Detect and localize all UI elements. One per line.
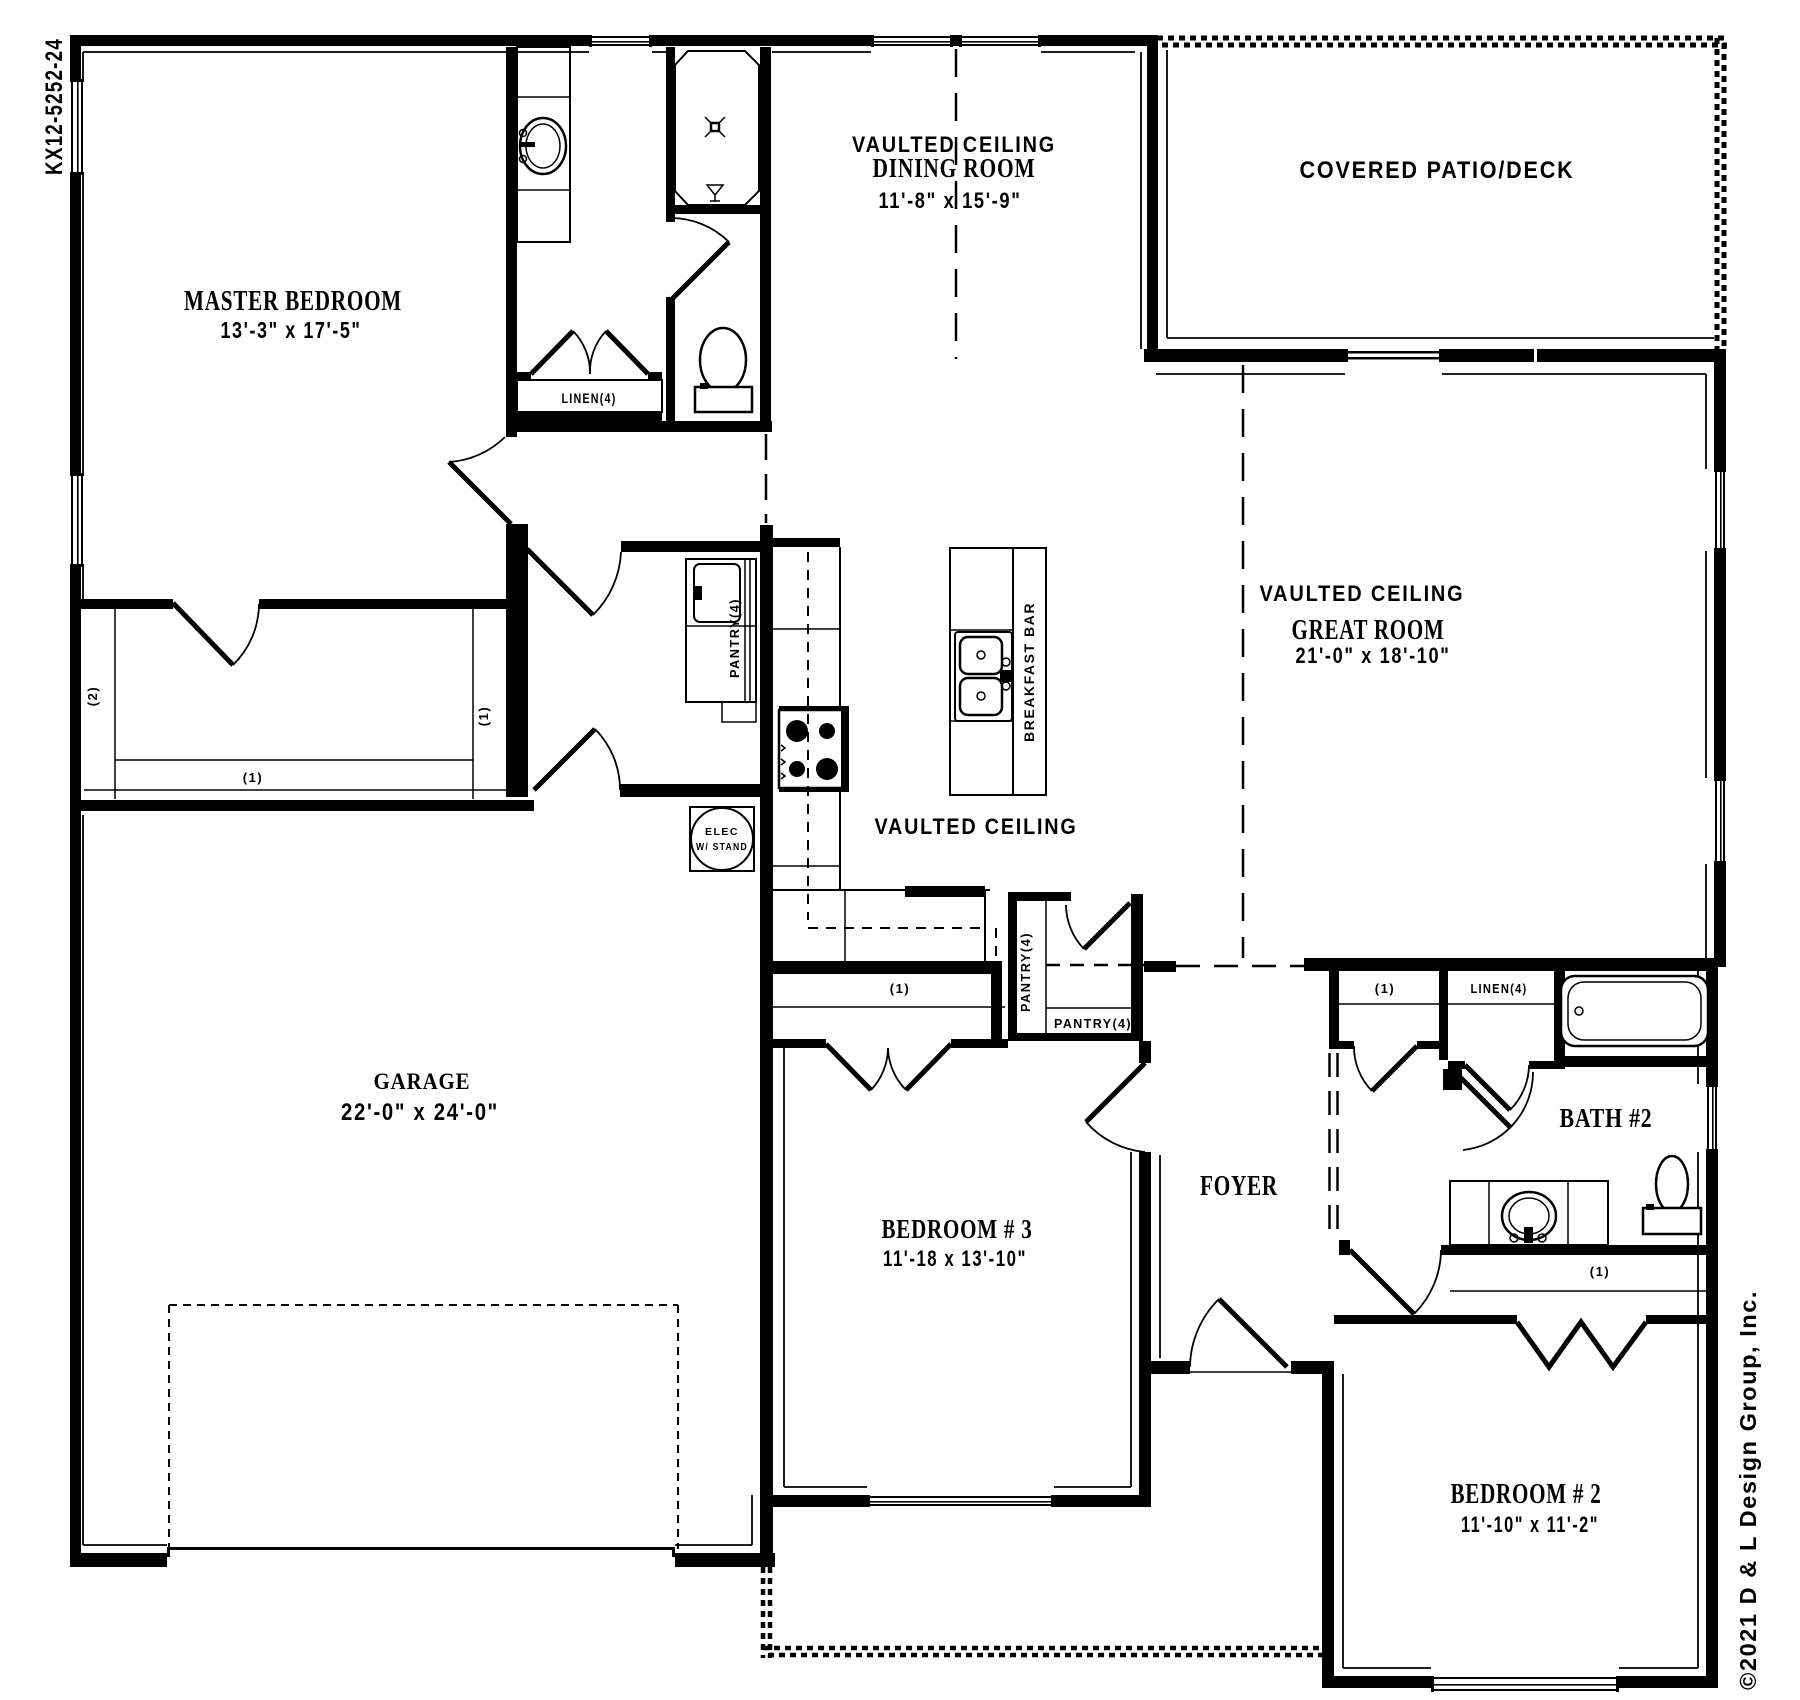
svg-text:ELEC: ELEC — [705, 826, 739, 838]
svg-text:(1): (1) — [1375, 981, 1395, 996]
svg-text:(1): (1) — [890, 981, 910, 996]
svg-text:FOYER: FOYER — [1200, 1171, 1278, 1202]
svg-text:DINING ROOM: DINING ROOM — [873, 153, 1036, 183]
svg-text:(1): (1) — [243, 770, 263, 785]
svg-text:PANTRY(4): PANTRY(4) — [1054, 1016, 1132, 1031]
svg-text:©2021 D & L Design Group, Inc.: ©2021 D & L Design Group, Inc. — [1735, 1290, 1761, 1690]
svg-text:22'-0" x 24'-0": 22'-0" x 24'-0" — [341, 1099, 499, 1126]
svg-text:W/ STAND: W/ STAND — [696, 841, 748, 853]
svg-text:BREAKFAST BAR: BREAKFAST BAR — [1021, 602, 1037, 742]
svg-text:BEDROOM # 3: BEDROOM # 3 — [882, 1214, 1033, 1244]
svg-text:BEDROOM # 2: BEDROOM # 2 — [1451, 1479, 1602, 1510]
svg-text:(1): (1) — [1590, 1264, 1610, 1279]
svg-text:PANTRY(4): PANTRY(4) — [727, 598, 742, 678]
svg-text:MASTER BEDROOM: MASTER BEDROOM — [184, 286, 402, 317]
svg-text:11'-10" x 11'-2": 11'-10" x 11'-2" — [1461, 1512, 1599, 1537]
svg-text:VAULTED CEILING: VAULTED CEILING — [875, 814, 1078, 839]
svg-text:(1): (1) — [476, 706, 491, 726]
svg-text:LINEN(4): LINEN(4) — [1471, 981, 1528, 996]
svg-text:13'-3" x 17'-5": 13'-3" x 17'-5" — [221, 317, 362, 343]
svg-text:KX12-5252-24: KX12-5252-24 — [41, 38, 68, 175]
svg-text:PANTRY(4): PANTRY(4) — [1019, 932, 1033, 1012]
svg-text:GARAGE: GARAGE — [374, 1069, 471, 1094]
svg-text:GREAT ROOM: GREAT ROOM — [1292, 615, 1445, 646]
svg-text:VAULTED CEILING: VAULTED CEILING — [1260, 581, 1465, 606]
svg-text:BATH #2: BATH #2 — [1560, 1103, 1653, 1133]
svg-text:11'-18 x 13'-10": 11'-18 x 13'-10" — [883, 1246, 1027, 1271]
svg-text:(2): (2) — [85, 686, 100, 706]
svg-text:21'-0" x 18'-10": 21'-0" x 18'-10" — [1296, 643, 1451, 668]
svg-text:11'-8" x 15'-9": 11'-8" x 15'-9" — [879, 188, 1022, 213]
svg-text:LINEN(4): LINEN(4) — [562, 391, 617, 406]
svg-text:COVERED PATIO/DECK: COVERED PATIO/DECK — [1300, 157, 1575, 184]
